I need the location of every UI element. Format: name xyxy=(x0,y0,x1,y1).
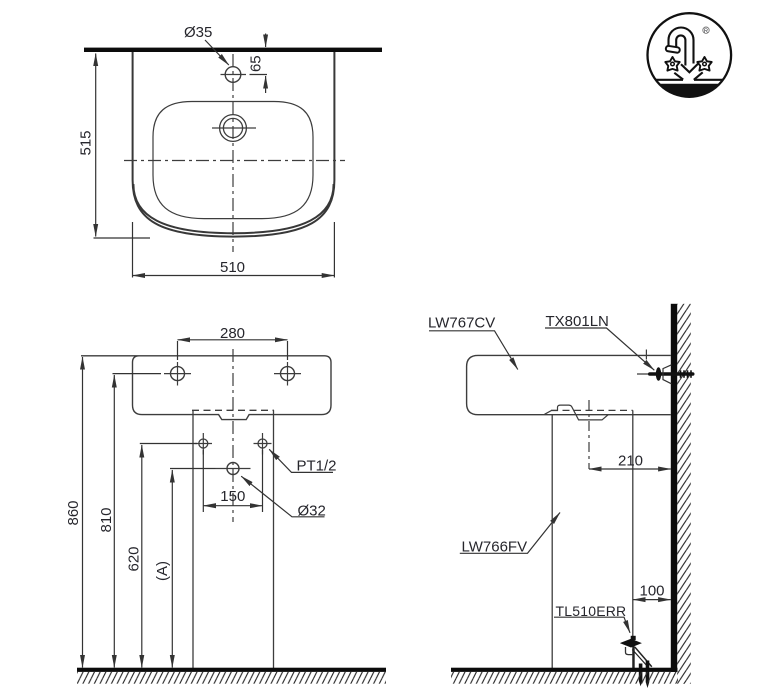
svg-text:860: 860 xyxy=(65,500,82,525)
svg-text:65: 65 xyxy=(248,55,265,72)
svg-text:150: 150 xyxy=(220,488,245,505)
svg-text:810: 810 xyxy=(98,507,115,532)
svg-text:620: 620 xyxy=(126,546,143,571)
svg-text:515: 515 xyxy=(77,130,94,155)
svg-text:R: R xyxy=(704,29,708,35)
svg-text:(A): (A) xyxy=(154,561,171,581)
svg-text:100: 100 xyxy=(639,583,664,600)
svg-text:LW767CV: LW767CV xyxy=(428,315,495,332)
svg-text:280: 280 xyxy=(220,325,245,342)
svg-text:210: 210 xyxy=(618,453,643,470)
svg-text:TL510ERR: TL510ERR xyxy=(556,603,627,619)
svg-text:Ø35: Ø35 xyxy=(184,24,212,41)
svg-text:510: 510 xyxy=(220,259,245,276)
